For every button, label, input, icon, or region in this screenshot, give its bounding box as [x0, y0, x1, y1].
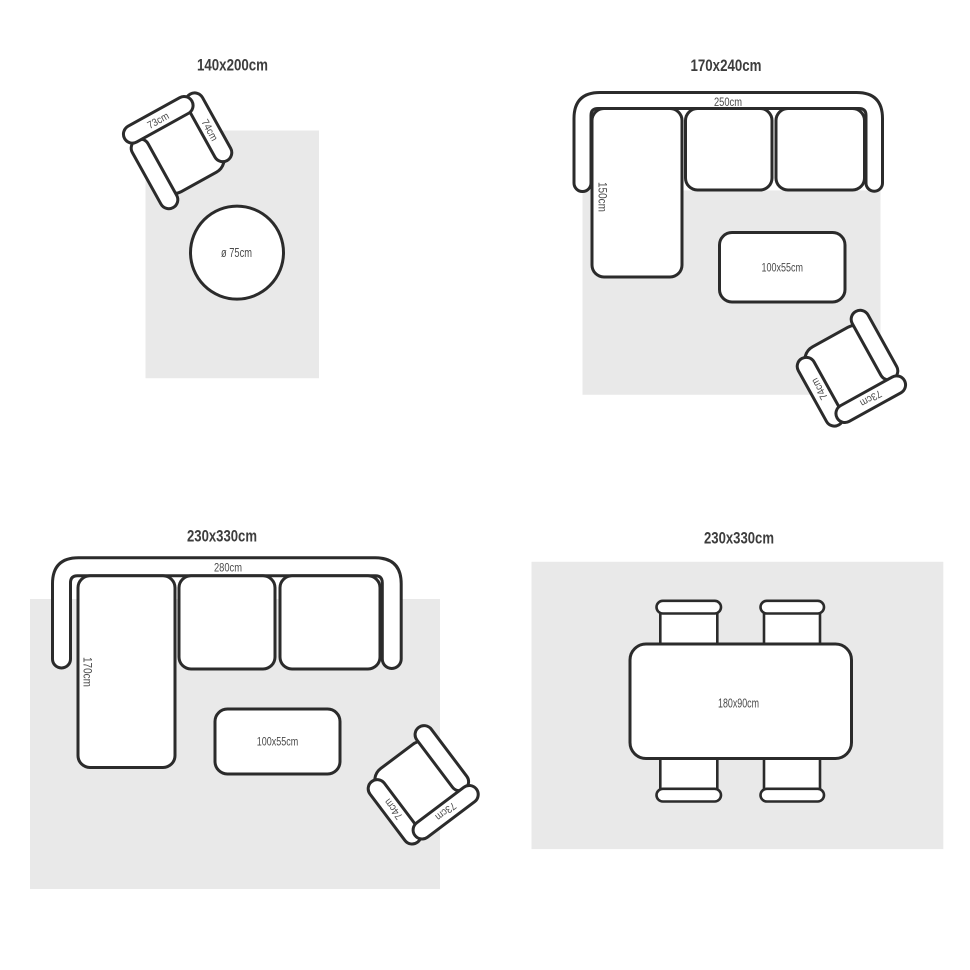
svg-text:100x55cm: 100x55cm — [762, 261, 804, 275]
svg-text:230x330cm: 230x330cm — [187, 527, 257, 546]
svg-text:280cm: 280cm — [214, 562, 242, 574]
svg-text:140x200cm: 140x200cm — [197, 56, 268, 75]
svg-text:170x240cm: 170x240cm — [691, 56, 762, 75]
svg-text:150cm: 150cm — [596, 182, 608, 212]
svg-text:250cm: 250cm — [714, 97, 742, 109]
svg-text:100x55cm: 100x55cm — [257, 735, 299, 749]
svg-text:ø 75cm: ø 75cm — [221, 245, 252, 260]
svg-text:230x330cm: 230x330cm — [704, 529, 774, 548]
svg-text:170cm: 170cm — [81, 657, 93, 687]
svg-text:180x90cm: 180x90cm — [718, 697, 759, 711]
